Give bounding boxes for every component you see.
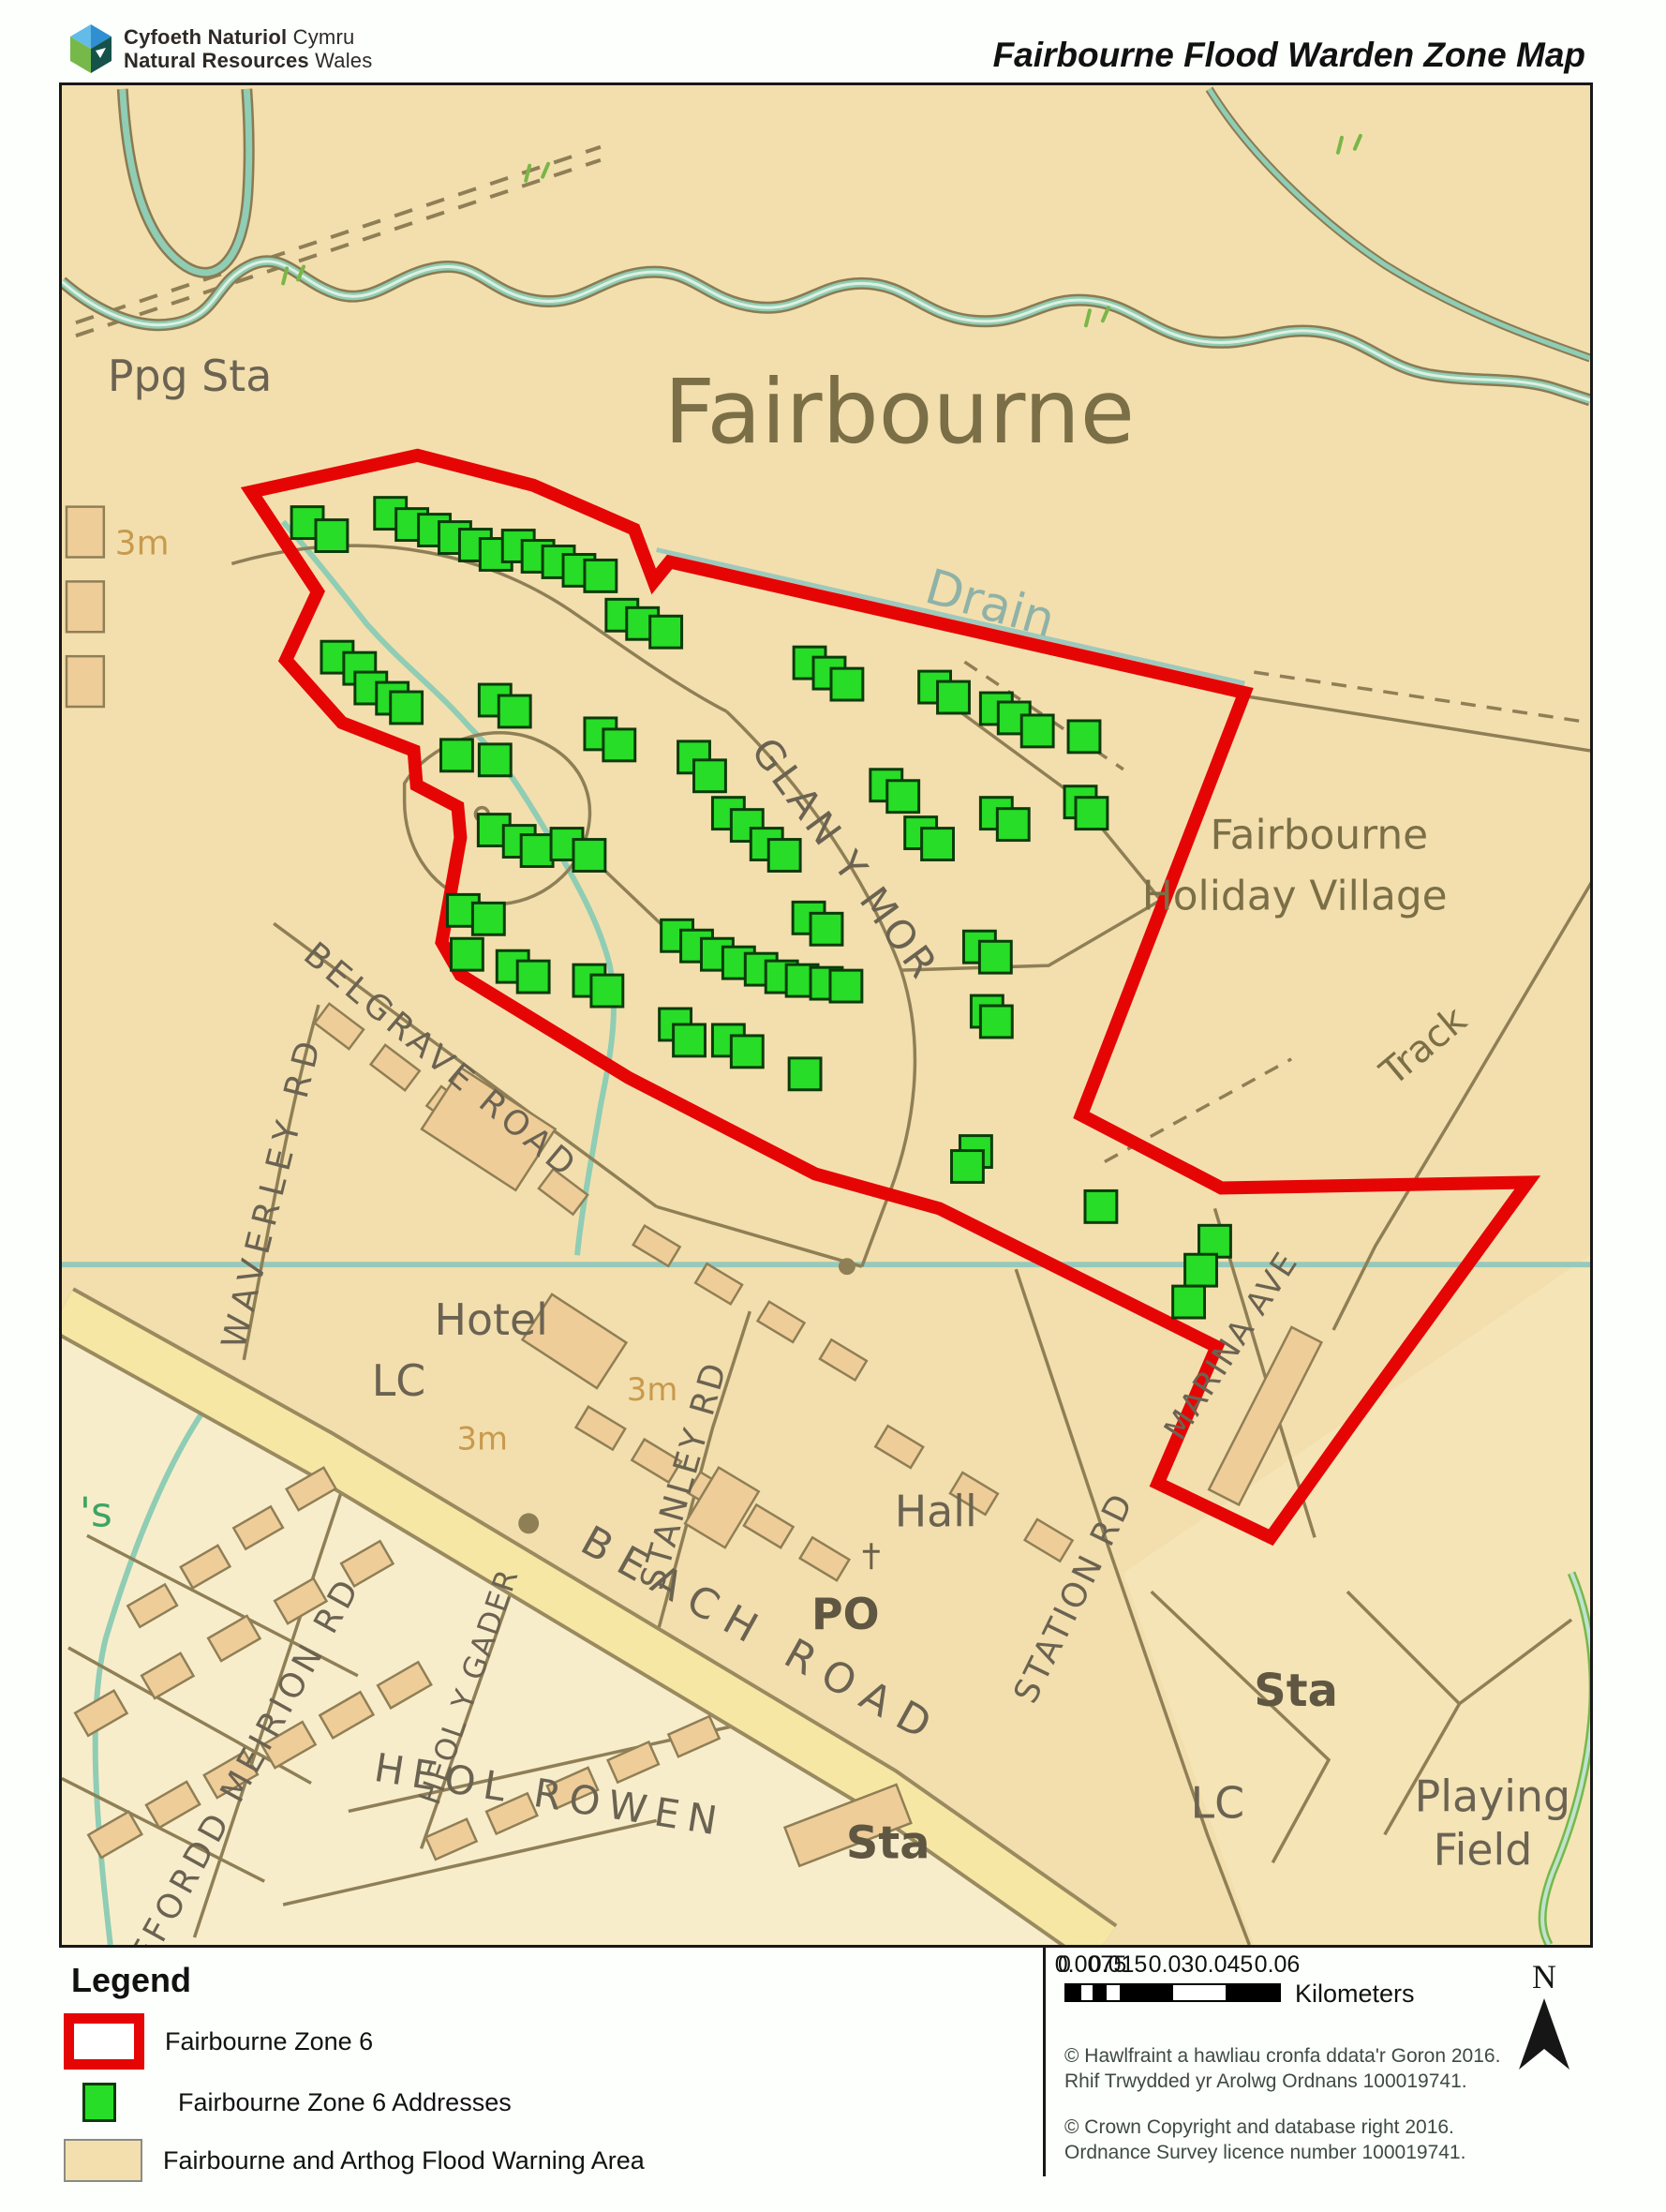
address-marker bbox=[1076, 798, 1108, 829]
address-marker bbox=[980, 1006, 1012, 1038]
attribution-welsh: © Hawlfraint a hawliau cronfa ddata'r Go… bbox=[1064, 2043, 1505, 2094]
address-marker bbox=[498, 695, 530, 727]
scalebar-tick: 0.03 bbox=[1149, 1951, 1195, 1979]
map-label-3m-stanley: 3m bbox=[627, 1371, 678, 1408]
address-marker bbox=[650, 616, 682, 648]
map-label-apostrophe-s: 's bbox=[80, 1488, 112, 1536]
address-marker bbox=[831, 668, 863, 700]
map-label-playing-field-1: Playing bbox=[1415, 1771, 1570, 1821]
page-title: Fairbourne Flood Warden Zone Map bbox=[555, 36, 1585, 75]
address-swatch bbox=[82, 2083, 116, 2122]
map-panel: Ppg StaFairbourne3mDrainGLAN Y MORFairbo… bbox=[59, 82, 1593, 1948]
scalebar: 00.00750.0150.030.0450.06 Kilometers bbox=[1053, 1951, 1494, 2017]
address-marker bbox=[1173, 1286, 1205, 1318]
warning-area-swatch bbox=[64, 2139, 142, 2182]
scalebar-tick: 0.015 bbox=[1089, 1951, 1148, 1979]
address-marker bbox=[451, 938, 483, 970]
page: Cyfoeth Naturiol Cymru Natural Resources… bbox=[0, 0, 1666, 2212]
map-label-lc-hotel: LC bbox=[372, 1355, 426, 1406]
address-marker bbox=[573, 840, 605, 872]
attribution-english: © Crown Copyright and database right 201… bbox=[1064, 2115, 1505, 2165]
nrw-logo-icon bbox=[67, 22, 114, 75]
address-marker bbox=[517, 961, 549, 993]
scalebar-bar bbox=[1064, 1983, 1281, 2002]
address-marker bbox=[997, 809, 1029, 841]
address-marker bbox=[585, 560, 617, 591]
attrib-welsh-2: Rhif Trwydded yr Arolwg Ordnans 10001974… bbox=[1064, 2069, 1505, 2094]
address-marker bbox=[922, 829, 954, 860]
legend-item-zone: Fairbourne Zone 6 bbox=[64, 2013, 373, 2070]
map-label-3m-lc: 3m bbox=[456, 1421, 508, 1457]
attrib-english-1: © Crown Copyright and database right 201… bbox=[1064, 2115, 1505, 2140]
address-marker bbox=[316, 520, 348, 552]
map-canvas: Ppg StaFairbourne3mDrainGLAN Y MORFairbo… bbox=[62, 85, 1590, 1945]
map-label-holiday-village-2: Holiday Village bbox=[1142, 872, 1448, 919]
nrw-logo-text: Cyfoeth Naturiol Cymru Natural Resources… bbox=[124, 25, 372, 72]
map-label-lc-station: LC bbox=[1191, 1777, 1245, 1828]
address-marker bbox=[391, 692, 423, 724]
attrib-english-2: Ordnance Survey licence number 100019741… bbox=[1064, 2140, 1505, 2165]
address-marker bbox=[1068, 721, 1100, 753]
address-marker bbox=[731, 1036, 763, 1068]
scalebar-ticks: 00.00750.0150.030.0450.06 bbox=[1053, 1951, 1494, 1976]
address-marker bbox=[979, 941, 1011, 973]
map-label-po: PO bbox=[811, 1589, 880, 1639]
address-marker bbox=[1085, 1190, 1117, 1222]
address-marker bbox=[811, 913, 842, 945]
logo-line2-reg: Wales bbox=[309, 49, 373, 72]
map-label-fairbourne-town: Fairbourne bbox=[664, 361, 1135, 464]
legend-label: Fairbourne Zone 6 Addresses bbox=[178, 2088, 512, 2117]
map-label-3m-northwest: 3m bbox=[115, 524, 170, 562]
address-marker bbox=[1021, 715, 1053, 747]
address-marker bbox=[441, 740, 473, 771]
address-marker bbox=[768, 840, 800, 872]
map-label-hall: Hall bbox=[895, 1486, 977, 1536]
map-label-holiday-village-1: Fairbourne bbox=[1210, 812, 1428, 859]
map-label-playing-field-2: Field bbox=[1434, 1824, 1533, 1875]
address-marker bbox=[1185, 1254, 1217, 1286]
legend-title: Legend bbox=[71, 1961, 191, 2000]
legend-label: Fairbourne and Arthog Flood Warning Area bbox=[163, 2146, 645, 2175]
address-marker bbox=[674, 1024, 706, 1056]
zone-outline-swatch bbox=[64, 2013, 144, 2070]
building bbox=[67, 656, 104, 707]
map-label-hotel: Hotel bbox=[435, 1294, 548, 1345]
logo-line1-bold: Cyfoeth Naturiol bbox=[124, 25, 287, 49]
address-marker bbox=[789, 1058, 821, 1090]
legend-label: Fairbourne Zone 6 bbox=[165, 2027, 373, 2056]
logo-line1-reg: Cymru bbox=[287, 25, 354, 49]
attrib-welsh-1: © Hawlfraint a hawliau cronfa ddata'r Go… bbox=[1064, 2043, 1505, 2069]
address-marker bbox=[952, 1151, 984, 1183]
north-label: N bbox=[1532, 1957, 1556, 1996]
building bbox=[67, 507, 104, 558]
address-marker bbox=[472, 903, 504, 934]
address-marker bbox=[1199, 1225, 1231, 1257]
address-marker bbox=[938, 681, 970, 713]
address-marker bbox=[830, 970, 862, 1002]
scalebar-tick: 0.045 bbox=[1195, 1951, 1254, 1979]
building bbox=[67, 581, 104, 632]
map-label-sta-station: Sta bbox=[1254, 1666, 1338, 1717]
footer-divider bbox=[1043, 1948, 1046, 2176]
map-label-sta-beach: Sta bbox=[846, 1817, 930, 1869]
legend-item-warning-area: Fairbourne and Arthog Flood Warning Area bbox=[64, 2139, 645, 2182]
address-marker bbox=[591, 975, 623, 1007]
address-marker bbox=[694, 760, 726, 792]
north-arrow-icon bbox=[1497, 1995, 1591, 2098]
address-marker bbox=[887, 781, 919, 813]
north-arrow: N bbox=[1497, 1957, 1591, 2088]
address-marker bbox=[521, 835, 553, 867]
map-label-ppg-sta: Ppg Sta bbox=[108, 351, 272, 401]
address-marker bbox=[603, 729, 635, 761]
address-marker bbox=[479, 744, 511, 776]
logo-line2-bold: Natural Resources bbox=[124, 49, 309, 72]
scalebar-unit: Kilometers bbox=[1295, 1980, 1415, 2009]
scalebar-tick: 0.06 bbox=[1255, 1951, 1301, 1979]
legend-item-addresses: Fairbourne Zone 6 Addresses bbox=[64, 2083, 512, 2122]
